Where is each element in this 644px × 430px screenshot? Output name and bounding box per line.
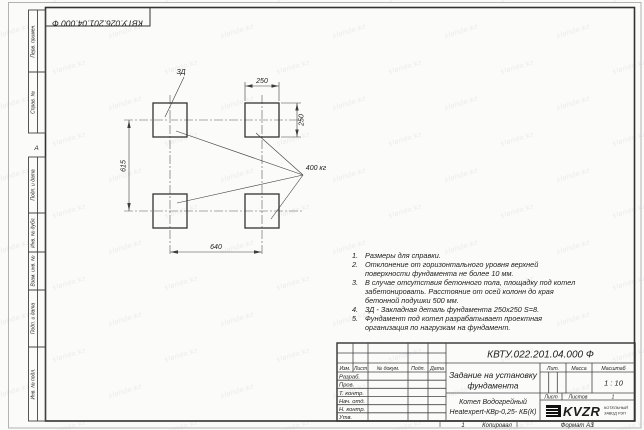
note-text: Отклонение от горизонтального уровня вер…	[365, 260, 576, 278]
left-frame-stamps	[29, 10, 46, 421]
note-text: Размеры для справки.	[365, 251, 576, 260]
title-block-right-labels: Лит. Масса Масштаб 1 : 10 Лист Листов 1	[543, 366, 626, 401]
note-number: 4.	[352, 305, 365, 314]
note-item: 4. ЗД - Закладная деталь фундамента 250х…	[352, 305, 576, 314]
note-item: 2. Отклонение от горизонтального уровня …	[352, 260, 576, 278]
mass-label: Масса	[571, 366, 586, 372]
note-number: 3.	[352, 278, 365, 305]
label-zd: ЗД	[177, 69, 186, 76]
scale-value: 1 : 10	[604, 379, 624, 388]
kvzr-logo-text: KVZR	[563, 404, 601, 419]
doc-title-line2: фундамента	[468, 381, 519, 391]
dimension-texts: 250 250 615 640 ЗД 400 кг	[121, 69, 327, 251]
row-nkontr: Н. контр.	[339, 407, 365, 413]
stamp-label: Инв. № подл.	[31, 368, 37, 399]
dim-right: 250	[299, 114, 306, 127]
stamp-label: Инв. № дубл.	[31, 217, 37, 248]
row-razrab: Разраб.	[339, 375, 360, 381]
top-designation-box: КВТУ.026.201.04.000 Ф	[46, 8, 151, 29]
title-block-designation: КВТУ.022.201.04.000 Ф	[487, 350, 594, 361]
lit-label: Лит.	[546, 366, 559, 372]
format-label: Формат А3	[561, 423, 594, 429]
foundation-pads	[153, 103, 279, 228]
dim-top: 250	[255, 78, 268, 85]
dimension-lines	[129, 82, 301, 252]
product-line2: Heatexpert-КВр-0,25- КБ(К)	[450, 409, 537, 416]
leader-lines	[165, 77, 303, 219]
dim-bottom: 640	[210, 244, 222, 251]
stamp-label: Взам. инв. №	[31, 255, 37, 287]
note-item: 5. Фундамент под котел разрабатывает про…	[352, 314, 576, 332]
stamp-label: Подп. и дата	[31, 303, 37, 335]
foundation-plan: 250 250 615 640 ЗД 400 кг	[121, 69, 327, 256]
note-number: 2.	[352, 260, 365, 278]
doc-title-line1: Задание на установку	[449, 370, 538, 380]
scale-label: Масштаб	[601, 366, 626, 372]
drawing-sheet: slando.kzslando.kzslando.kzslando.kzslan…	[0, 0, 644, 430]
top-designation-text: КВТУ.026.201.04.000 Ф	[52, 19, 143, 29]
label-load: 400 кг	[306, 165, 327, 172]
kvzr-caption-line1: КОТЕЛЬНЫЙ	[604, 406, 628, 410]
notes-list: 1. Размеры для справки. 2. Отклонение от…	[352, 251, 576, 332]
col-list: Лист	[353, 366, 368, 372]
note-number: 5.	[352, 314, 365, 332]
stamp-label: Справ. №	[31, 91, 37, 114]
note-text: В случае отсутствия бетонного пола, площ…	[365, 278, 576, 305]
note-item: 1. Размеры для справки.	[352, 251, 576, 260]
sheet-frame	[9, 3, 642, 429]
stamp-label: Перв. примен.	[31, 24, 37, 57]
centerlines	[124, 95, 303, 256]
product-line1: Котел Водогрейный	[459, 398, 527, 406]
kvzr-caption-line2: ЗАВОД РЭП	[604, 412, 626, 416]
note-number: 1.	[352, 251, 365, 260]
col-izm: Изм.	[339, 366, 350, 372]
dim-left: 615	[121, 160, 128, 172]
row-nachotd: Нач. отд.	[339, 399, 365, 405]
stamp-label: Подп. и дата	[31, 169, 37, 201]
note-text: Фундамент под котел разрабатывает проект…	[365, 314, 576, 332]
copies-number: 1	[461, 423, 464, 429]
copied-label: Копировал	[482, 423, 512, 429]
row-prov: Пров.	[339, 383, 354, 389]
col-data: Дата	[429, 366, 444, 372]
row-tkontr: Т. контр.	[339, 391, 364, 397]
note-text: ЗД - Закладная деталь фундамента 250х250…	[365, 305, 576, 314]
note-item: 3. В случае отсутствия бетонного пола, п…	[352, 278, 576, 305]
title-block: КВТУ.022.201.04.000 Ф Изм. Лист № докум.…	[337, 343, 635, 421]
sheets-value: 1	[612, 395, 615, 401]
col-podp: Подп.	[411, 366, 425, 372]
title-block-rows: Разраб. Пров. Т. контр. Нач. отд. Н. кон…	[338, 375, 365, 422]
row-utv: Утв.	[338, 415, 352, 421]
sheets-label: Листов	[568, 395, 588, 401]
kvzr-logo: KVZR КОТЕЛЬНЫЙ ЗАВОД РЭП	[546, 404, 628, 419]
drawing-svg: КВТУ.026.201.04.000 Ф Перв. примен. Спра…	[0, 0, 644, 430]
sheet-label: Лист	[543, 395, 558, 401]
zone-marker: А	[33, 145, 38, 152]
col-dokum: № докум.	[377, 366, 400, 372]
